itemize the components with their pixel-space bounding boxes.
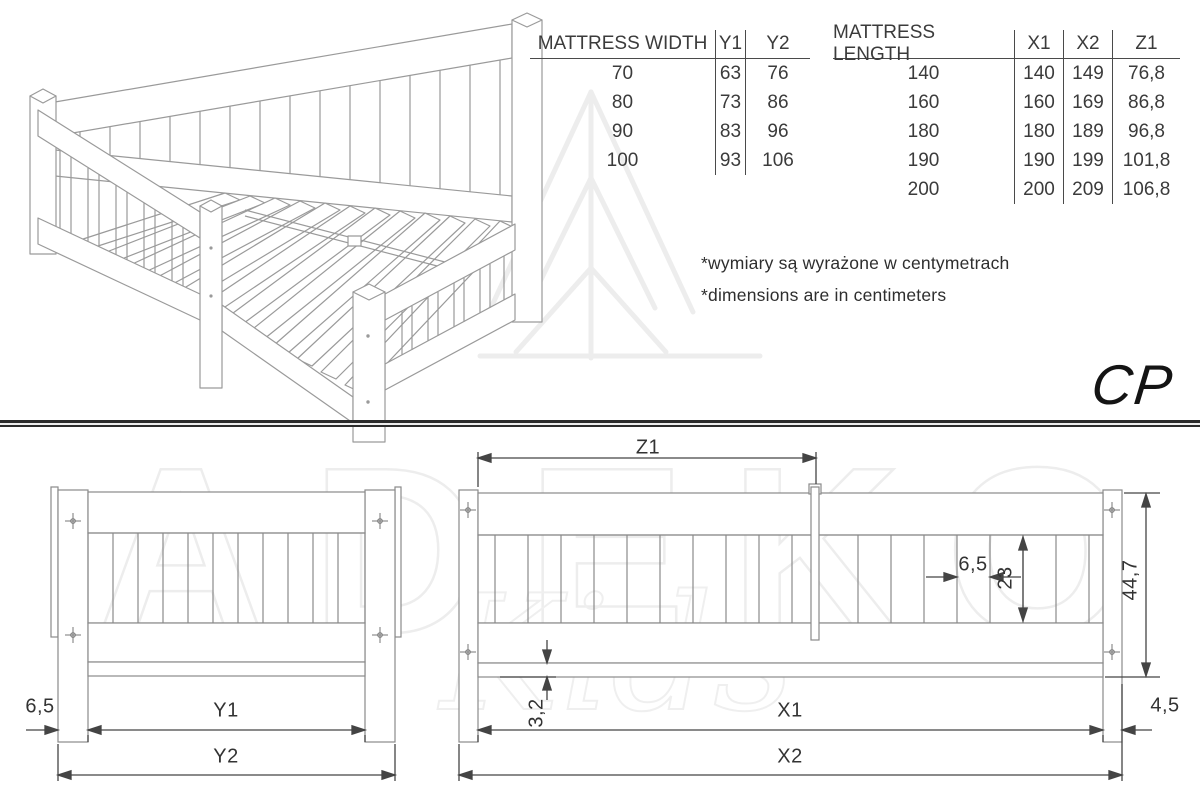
table-cell: 96 (745, 117, 810, 146)
table-cell: 83 (715, 117, 745, 146)
table-cell: 93 (715, 146, 745, 175)
table-cell: 63 (715, 59, 745, 88)
dim-total-height-label: 44,7 (1120, 560, 1143, 601)
width-table-header-y2: Y2 (745, 30, 810, 59)
dim-slat-height-label: 23 (995, 566, 1018, 589)
mattress-width-table: MATTRESS WIDTH Y1 Y2 70 63 76 80 73 86 9… (530, 30, 810, 175)
dim-z1-label: Z1 (636, 437, 660, 460)
dim-rail-drop-label: 3,2 (526, 698, 549, 727)
table-cell: 86,8 (1112, 88, 1180, 117)
table-cell: 200 (833, 175, 1014, 204)
table-cell: 160 (1014, 88, 1063, 117)
length-table-header-x1: X1 (1014, 30, 1063, 59)
table-cell: 106,8 (1112, 175, 1180, 204)
length-table-header: MATTRESS LENGTH (833, 30, 1014, 59)
table-cell: 149 (1063, 59, 1112, 88)
dim-post-width-label: 4,5 (1150, 695, 1179, 718)
table-cell: 209 (1063, 175, 1112, 204)
table-cell: 96,8 (1112, 117, 1180, 146)
table-cell: 140 (833, 59, 1014, 88)
table-cell: 200 (1014, 175, 1063, 204)
mattress-length-table: MATTRESS LENGTH X1 X2 Z1 140 140 149 76,… (833, 30, 1180, 204)
table-cell: 180 (1014, 117, 1063, 146)
table-cell: 199 (1063, 146, 1112, 175)
table-cell: 80 (530, 88, 715, 117)
table-cell: 180 (833, 117, 1014, 146)
table-cell: 189 (1063, 117, 1112, 146)
technical-drawing-page: ADEKO Kids (0, 0, 1200, 800)
table-cell: 190 (1014, 146, 1063, 175)
length-table-header-x2: X2 (1063, 30, 1112, 59)
table-cell: 76,8 (1112, 59, 1180, 88)
table-cell: 190 (833, 146, 1014, 175)
dim-x1-label: X1 (777, 700, 802, 723)
table-cell: 160 (833, 88, 1014, 117)
table-cell: 169 (1063, 88, 1112, 117)
table-cell: 76 (745, 59, 810, 88)
width-table-header-y1: Y1 (715, 30, 745, 59)
dim-y1-label: Y1 (213, 700, 238, 723)
width-table-header: MATTRESS WIDTH (530, 30, 715, 59)
dim-x2-label: X2 (777, 746, 802, 769)
model-logo: CP (1089, 352, 1178, 417)
table-cell: 106 (745, 146, 810, 175)
table-cell: 73 (715, 88, 745, 117)
isometric-bed-drawing (30, 13, 542, 442)
table-cell: 140 (1014, 59, 1063, 88)
dim-slat-gap-label: 6,5 (958, 554, 987, 577)
dim-side-offset-label: 6,5 (25, 696, 54, 719)
table-cell: 86 (745, 88, 810, 117)
table-cell: 70 (530, 59, 715, 88)
dim-y2-label: Y2 (213, 746, 238, 769)
table-cell: 100 (530, 146, 715, 175)
table-cell: 90 (530, 117, 715, 146)
note-units-pl: *wymiary są wyrażone w centymetrach (701, 253, 1009, 274)
length-table-header-z1: Z1 (1112, 30, 1180, 59)
table-cell: 101,8 (1112, 146, 1180, 175)
note-units-en: *dimensions are in centimeters (701, 285, 946, 306)
section-divider-2 (0, 425, 1200, 428)
